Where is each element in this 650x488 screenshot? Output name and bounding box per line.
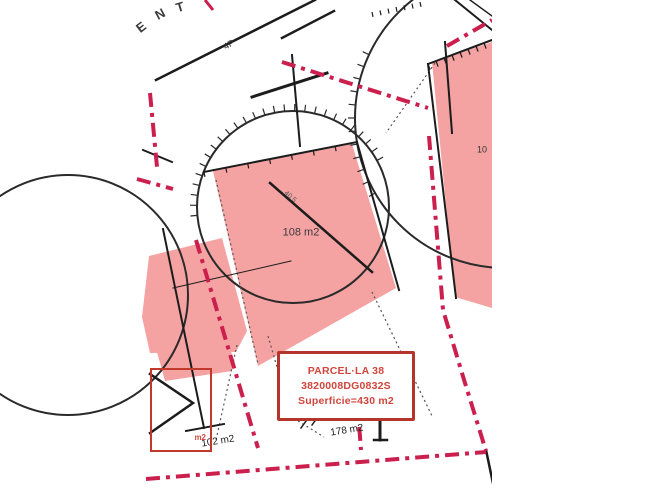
topright-edge-1 [455, 0, 492, 30]
area-label-central: 108 m2 [283, 228, 320, 239]
secondary-info-box: m2 [150, 368, 212, 452]
boundary-bottom [146, 452, 486, 479]
parcel-surface: Superficie=430 m2 [298, 395, 394, 407]
parcel-name: PARCEL·LA 38 [308, 365, 385, 377]
boundary-left-vertical [150, 93, 157, 167]
boundary-topleft-tick [205, 0, 213, 10]
survey-circle-right [355, 0, 650, 268]
leader-tick-a [301, 421, 306, 428]
parcel-info-box: PARCEL·LA 38 3820008DG0832S Superficie=4… [277, 351, 415, 421]
survey-bar [252, 73, 327, 97]
dotted-right-corner [386, 63, 435, 133]
parcel-left [142, 238, 247, 353]
cadastral-reference: 3820008DG0832S [301, 380, 391, 392]
cadastral-map-view: E N T 4P 108 m2 40.5 10 102 m2 178 m2 PA… [0, 0, 650, 488]
street-edge-2 [282, 11, 334, 38]
dotted-below-box [298, 421, 324, 437]
survey-vertical-top [292, 55, 300, 146]
secondary-m2-label: m2 [194, 433, 206, 442]
corner-bottom-right [486, 450, 494, 488]
boundary-left-horizontal [137, 179, 173, 189]
clipped-area-label: 10 [477, 146, 487, 155]
